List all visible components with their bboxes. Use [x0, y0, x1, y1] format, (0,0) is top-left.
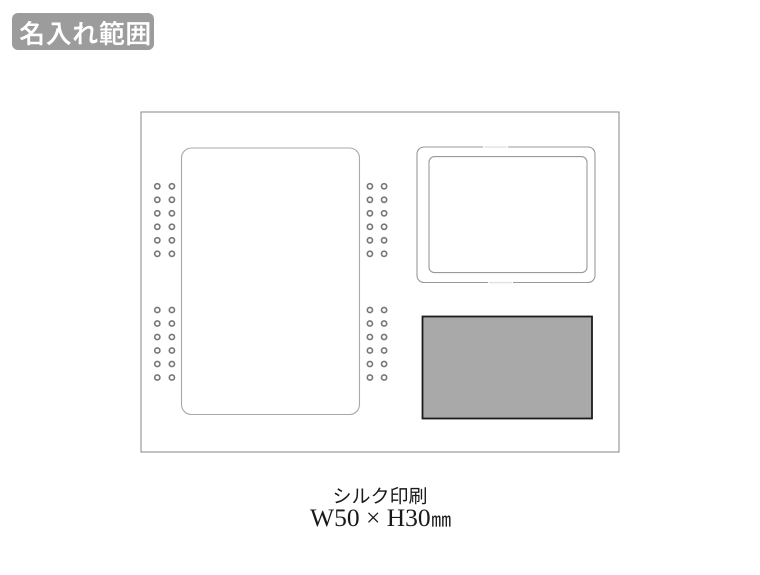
svg-text:W50 × H30: W50 × H30	[310, 503, 431, 532]
